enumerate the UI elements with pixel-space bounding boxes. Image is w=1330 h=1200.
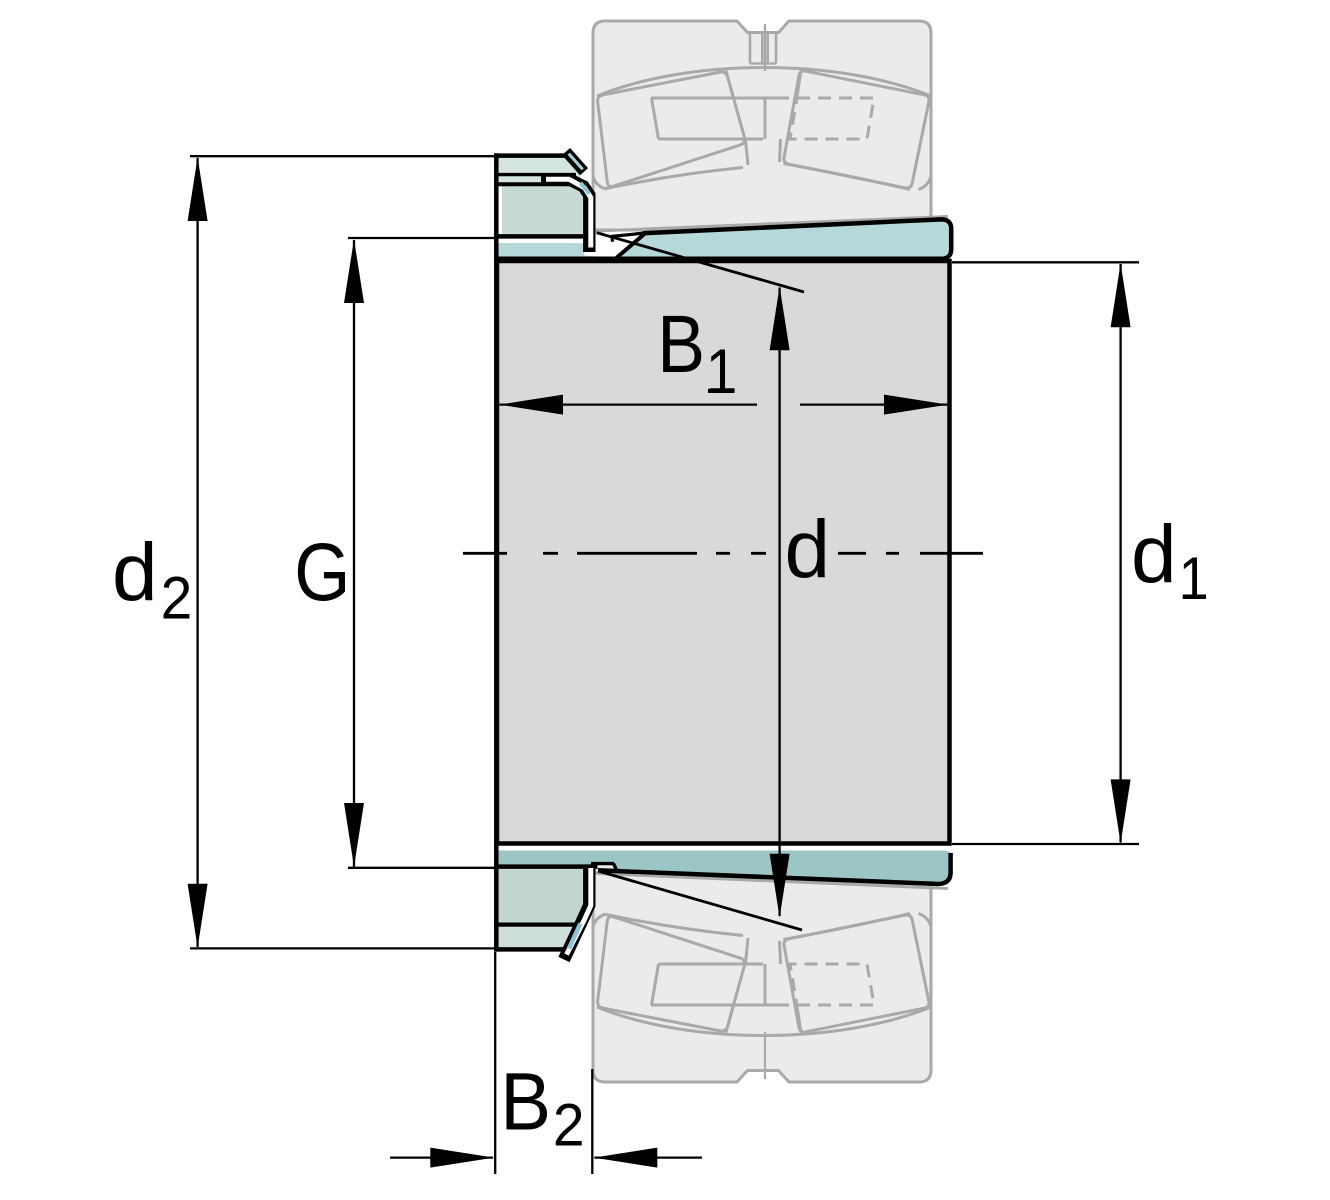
svg-text:d: d bbox=[112, 527, 158, 618]
svg-text:d: d bbox=[1131, 509, 1177, 600]
svg-text:B: B bbox=[657, 299, 705, 391]
svg-text:1: 1 bbox=[1179, 545, 1209, 612]
svg-text:2: 2 bbox=[161, 565, 193, 632]
svg-text:G: G bbox=[294, 527, 350, 618]
svg-text:B: B bbox=[500, 1055, 551, 1147]
svg-text:2: 2 bbox=[553, 1092, 585, 1159]
svg-text:d: d bbox=[785, 504, 831, 595]
svg-text:1: 1 bbox=[706, 336, 738, 406]
